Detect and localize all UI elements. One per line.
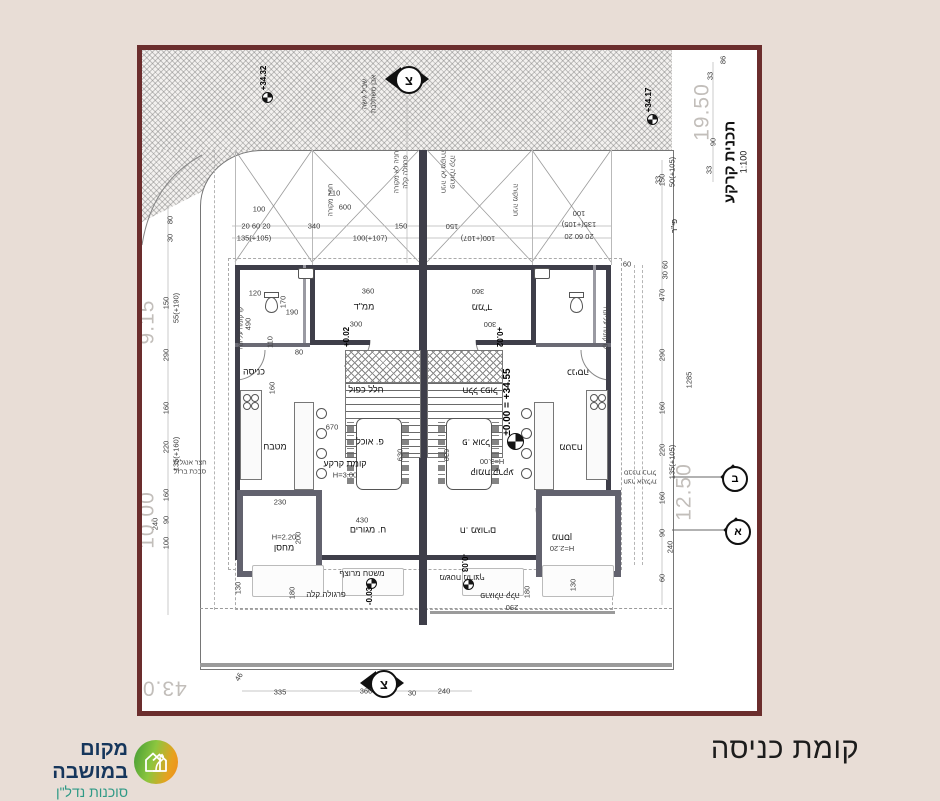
plan-label: 50(+105) <box>668 157 676 187</box>
plan-label: מטבח <box>263 443 286 452</box>
plan-label: 160 <box>658 402 666 415</box>
plan-label: 470 <box>658 289 666 302</box>
plan-label: -0.03 <box>460 554 468 572</box>
kitchen-island <box>534 402 554 490</box>
plan-label: 190 <box>286 308 299 316</box>
plan-label: 360 <box>360 687 373 695</box>
parking-column <box>312 150 313 265</box>
plan-label: שביל גישה <box>363 79 370 109</box>
stove-burner <box>590 394 598 402</box>
plan-label: 9.15 <box>142 300 158 345</box>
plan-label: 90 <box>658 529 666 537</box>
sink <box>534 268 550 279</box>
plan-label: מחסן <box>274 544 294 553</box>
north-letter: צ <box>405 73 413 88</box>
plan-label: 135(+105) <box>562 220 596 228</box>
plan-label: 230 <box>274 498 287 506</box>
plan-label: קו קומה עליונה <box>601 307 608 349</box>
parking-column <box>235 150 236 265</box>
mamad-wall <box>476 340 536 345</box>
plan-label: 130 <box>234 582 242 595</box>
stair-void-hatch <box>345 350 421 384</box>
wall-top-left <box>235 265 419 270</box>
plan-label: סבכת ברזל <box>624 468 656 475</box>
plan-label: 240 <box>438 687 451 695</box>
plan-label: ח. מגורים <box>350 526 386 535</box>
plan-label: H=3.00 <box>480 457 504 465</box>
plan-frame: צ צ ב א תכנית קרקע 1:100 +34.32+34.17שבי… <box>137 45 762 716</box>
plan-label: פרגולה קלה <box>404 155 411 189</box>
plan-label: 43.00 <box>142 678 187 699</box>
plan-label: 240 <box>666 541 674 554</box>
plan-label: פי"ר <box>671 219 679 233</box>
stove-burner <box>251 394 259 402</box>
plan-label: 360 <box>362 287 375 295</box>
plan-label: 110 <box>266 336 274 348</box>
plan-label: 46 <box>234 672 245 683</box>
plan-label: 10.00 <box>142 491 158 549</box>
plan-label: חצר אנגלית <box>173 461 206 468</box>
plan-label: ממ"ד <box>354 303 375 312</box>
plan-label: H=2.20 <box>550 544 574 552</box>
stove-burner <box>598 394 606 402</box>
wall-top-right <box>427 265 611 270</box>
plan-label: 710 <box>328 189 341 197</box>
floor-plan: צ צ ב א תכנית קרקע 1:100 +34.32+34.17שבי… <box>142 50 757 711</box>
plan-label: 335 <box>274 688 287 696</box>
storage-room <box>536 490 621 577</box>
plan-label: 1285 <box>685 372 693 389</box>
plan-label: כניסה <box>243 368 265 377</box>
plan-label: 150 <box>446 222 459 230</box>
island-stool <box>316 408 327 419</box>
plan-label: כניסה <box>567 368 589 377</box>
plan-label: מטבח <box>559 443 582 452</box>
plan-label: 160 <box>162 489 170 502</box>
plan-label: 160 <box>658 492 666 505</box>
plan-label: 12.50 <box>674 463 695 521</box>
plan-label: קומת קרקע <box>470 468 513 477</box>
section-marker-a: א <box>723 517 749 543</box>
sink <box>298 268 314 279</box>
plan-label: 290 <box>506 603 519 611</box>
section-letter: ב <box>731 473 738 485</box>
plan-label: 150 <box>162 297 170 310</box>
plan-label: חלל כפול <box>348 386 383 395</box>
stove-burner <box>590 402 598 410</box>
island-stool <box>316 448 327 459</box>
street-hatch <box>142 50 672 150</box>
plan-label: 180 <box>523 586 531 599</box>
plan-label: 33 <box>706 72 714 80</box>
stair-void-hatch <box>427 350 503 384</box>
plan-label: 290 <box>162 349 170 362</box>
plan-label: 100 <box>253 205 266 213</box>
plan-label: H=2.20 <box>272 533 296 541</box>
north-arrow: צ <box>387 66 427 92</box>
plan-label: 290 <box>658 349 666 362</box>
logo-house-icon <box>134 740 178 784</box>
plan-label: 20 60 20 <box>564 232 593 240</box>
level-marker <box>262 92 273 103</box>
plan-label: 33 <box>705 166 713 174</box>
section-letter: א <box>734 526 742 538</box>
plan-label: 130 <box>569 579 577 592</box>
level-marker <box>647 114 658 125</box>
plan-label: 220 <box>162 441 170 454</box>
plan-label: 135(+105) <box>237 234 271 242</box>
dining-table <box>446 418 492 490</box>
plan-label: -0.03 <box>366 587 374 605</box>
plan-label: פרגולה קלה <box>306 591 345 599</box>
yard-line <box>642 265 643 565</box>
terrace-furniture <box>542 565 614 597</box>
mamad-wall <box>310 340 370 345</box>
yard-line <box>634 265 635 565</box>
plan-label: +0.02 <box>495 327 503 347</box>
logo-text: מקום במושבה סוכנות נדל"ן <box>6 738 128 801</box>
island-stool <box>521 408 532 419</box>
plan-label: 90 <box>162 516 170 524</box>
parking-column <box>611 150 612 265</box>
kitchen-island <box>294 402 314 490</box>
plan-label: 670 <box>326 423 339 431</box>
page-title: קומת כניסה <box>690 733 880 766</box>
plan-label: מחסן <box>552 533 572 542</box>
plan-label: 100(+107) <box>461 234 495 242</box>
plan-label: 360 <box>472 287 485 295</box>
island-stool <box>316 468 327 479</box>
plan-label: 100 <box>162 537 170 550</box>
plan-label: פרגולה קלה <box>480 591 519 599</box>
plan-label: 630 <box>396 449 404 462</box>
plan-label: 100(+107) <box>353 234 387 242</box>
plan-label: 30 <box>166 234 174 242</box>
plan-label: 30 <box>408 689 416 697</box>
plan-label: 630 <box>442 449 450 462</box>
plan-label: פ. אוכל <box>356 438 384 447</box>
plan-label: H=3.00 <box>333 471 357 479</box>
plan-label: +34.17 <box>645 88 653 113</box>
plan-label: +0.02 <box>343 327 351 347</box>
plan-label: חניה לא מקורה <box>439 151 446 194</box>
north-letter: צ <box>380 677 388 692</box>
plan-label: סבכת ברזל <box>174 470 206 477</box>
plan-label: 19.50 <box>692 83 713 141</box>
plan-label: 80 <box>295 348 303 356</box>
plan-label: 160 <box>268 382 276 395</box>
plan-label: 170 <box>279 296 287 309</box>
plan-label: 340 <box>308 222 321 230</box>
toilet <box>265 297 278 313</box>
plan-label: 60 <box>623 260 631 268</box>
plan-label: 120 <box>249 289 262 297</box>
plot-bottom-line <box>200 663 672 667</box>
plan-label: חלל כפול <box>462 386 497 395</box>
toilet <box>570 297 583 313</box>
plan-label: חניה לא מקורה <box>395 151 402 194</box>
plan-label: קו קומה עליונה <box>239 307 246 349</box>
plan-label: 180 <box>288 587 296 600</box>
parking-column <box>532 150 533 265</box>
plan-label: 430 <box>356 516 369 524</box>
plan-label: 55(+190) <box>172 293 180 323</box>
bath-divider <box>593 265 596 343</box>
plan-label: משטח מרוצף <box>439 573 484 581</box>
plan-label: 150 <box>395 222 408 230</box>
plan-label: 86 <box>719 56 727 64</box>
plan-label: 60 <box>658 574 666 582</box>
plan-label: 30 60 <box>661 261 669 280</box>
plan-title: תכנית קרקע <box>722 97 739 227</box>
plan-label: חצר אנגלית <box>623 477 656 484</box>
plan-label: חניה מקורה <box>511 183 518 216</box>
plan-label: אבן משתלבת <box>372 75 379 113</box>
stove-burner <box>598 402 606 410</box>
plan-title-block: תכנית קרקע 1:100 <box>722 97 749 227</box>
plan-label: ±0.00 = +34.55 <box>503 368 513 435</box>
plan-label: 90 <box>709 138 717 146</box>
plan-label: 20 60 20 <box>241 222 270 230</box>
plan-label: +34.32 <box>260 66 268 91</box>
page: { "title": {"text": "קומת כניסה"}, "logo… <box>0 0 940 788</box>
yard-line <box>214 150 215 610</box>
stove-burner <box>243 394 251 402</box>
island-stool <box>521 468 532 479</box>
plan-label: ממ"ד <box>472 303 493 312</box>
terrace-edge-line <box>430 611 615 614</box>
plan-label: פרגולה קלה <box>448 155 455 189</box>
plan-label: 300 <box>350 320 363 328</box>
plan-label: 160 <box>162 402 170 415</box>
plan-label: פ. אוכל <box>462 438 490 447</box>
section-marker-b: ב <box>720 464 746 490</box>
plan-label: 100 <box>573 209 586 217</box>
plan-scale: 1:100 <box>739 97 749 227</box>
plan-label: 150 <box>658 174 666 187</box>
logo-name: מקום במושבה <box>6 738 128 784</box>
plan-label: קומת קרקע <box>323 460 366 469</box>
plan-label: 600 <box>339 203 352 211</box>
plan-label: ח. מגורים <box>460 526 496 535</box>
plan-label: 80 <box>166 216 174 224</box>
logo-tagline: סוכנות נדל"ן <box>6 784 128 801</box>
plan-label: 220 <box>658 444 666 457</box>
stove-burner <box>243 402 251 410</box>
plan-label: משטח מרוצף <box>339 570 384 578</box>
island-stool <box>521 448 532 459</box>
stove-burner <box>251 402 259 410</box>
agency-logo: מקום במושבה סוכנות נדל"ן <box>6 738 186 786</box>
